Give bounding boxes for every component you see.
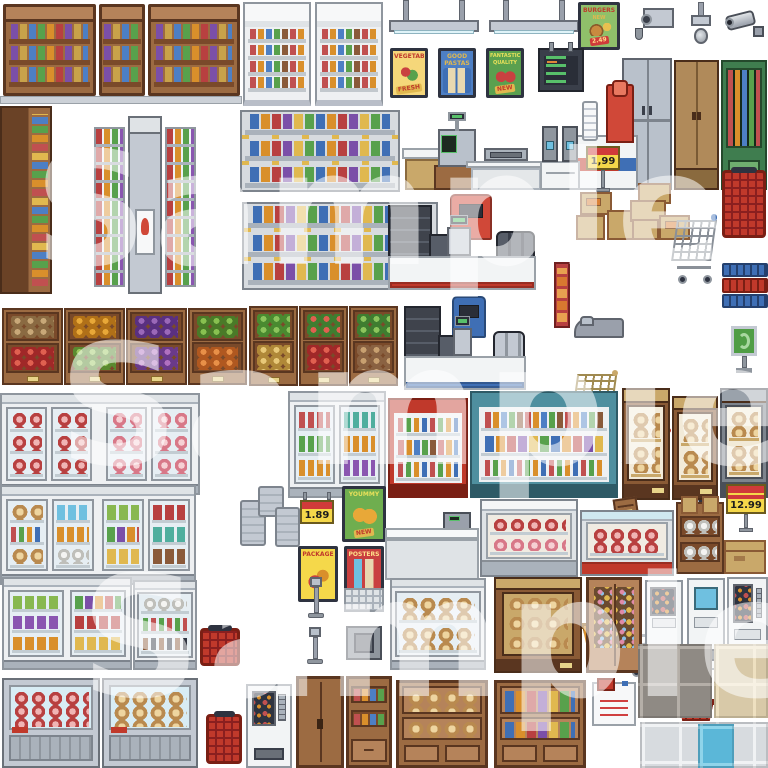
conveyor [388,205,432,258]
decor [697,112,701,120]
decor [490,537,569,555]
shelf-row [103,22,141,44]
sign-band [302,502,332,509]
cardboard-box-pile-a [576,192,638,240]
cooler-column-top [128,116,163,134]
price-tag [212,376,224,382]
poster-title: YOUMMY [346,491,382,498]
price-tag [27,376,39,382]
floor-tile-beige [714,644,768,718]
stacked-basket [722,294,768,308]
dairy-open-case-red [388,398,468,498]
plastic-crate-stack [240,486,300,548]
gondola-end-shelf [0,106,52,294]
shelf-header [6,7,93,22]
decor [546,141,554,149]
plastic-cart-red [722,170,766,238]
case-top [496,579,580,590]
sack-and-box-rack [676,502,724,574]
decor [506,635,570,652]
juice-art [349,559,378,588]
decor [141,596,188,614]
decor [10,434,43,455]
pasta-art [443,68,471,93]
case-top [2,487,194,496]
decor [508,598,568,610]
decor [635,28,643,40]
yummy-poster: YOUMMY NEW [342,486,386,542]
poster-badge: NEW [354,528,375,539]
decor [307,314,341,337]
decor [13,616,59,629]
decor [57,527,89,542]
case-base [624,484,668,498]
decor [453,218,465,222]
decor [74,635,123,654]
fridge-door [6,407,47,482]
cabinet-handle [320,719,323,729]
decor [452,115,462,118]
poster-subtitle: NEW [582,15,616,22]
decor [616,587,634,648]
box [681,496,699,514]
fridge-door [151,407,192,482]
decor [322,61,376,72]
shelf-row [248,76,306,92]
shelf-base-strip [0,96,242,104]
decor [730,446,758,471]
cooler-right-case [165,127,196,287]
decor [73,316,117,338]
decor [568,42,573,52]
cart-body [671,220,716,261]
sign-value: 1.89 [302,509,332,522]
decor [111,459,142,474]
decor [738,333,750,349]
decor [505,691,576,712]
snack-display-table [494,680,586,768]
bread-shelves [502,592,574,656]
sign-face: 1,99 [586,146,620,170]
sign-stand-pole-a [306,577,326,623]
case-top [624,390,668,403]
decor [492,519,566,532]
decor [113,692,187,727]
price-sign-1299: 12.99 [724,484,768,538]
decor [343,433,376,455]
decor [682,451,708,474]
decor [13,596,59,609]
shelf-row [248,60,306,76]
decor [344,436,375,452]
ceiling-dome-camera [688,2,714,44]
produce-bin-lettuce-potato [249,306,298,386]
cooler-left-case [94,127,125,287]
vegetable-art [395,61,423,84]
decor [492,539,566,552]
shelf-row [248,27,306,43]
case-base [135,660,195,668]
bin-top [353,310,394,340]
fridge-door [70,590,127,658]
produce-bin-greens-orange [188,308,247,385]
shelf-header [151,7,237,22]
decor [214,711,235,717]
lane-counter [388,256,536,290]
decor [681,448,709,478]
coin-panel [734,629,761,640]
decor [143,598,187,611]
decor [155,411,188,432]
green-arrow-signpost [729,326,759,379]
decor [153,549,185,564]
snack-vending-small [246,684,292,768]
case-top [392,580,484,588]
price-tag [268,377,280,383]
produce-bin-potato-tomato [2,308,63,385]
decor [407,691,478,712]
bin-top [192,312,243,341]
decor [56,525,90,545]
decor [357,314,391,337]
decor [104,24,139,38]
decor [731,167,758,173]
decor [104,67,139,81]
bin-top [130,312,182,341]
price-list-board [592,682,636,726]
decor [11,413,42,428]
decor [298,458,331,480]
freezer-label [12,727,28,733]
decor [250,167,391,182]
decor [508,617,568,629]
checkout-lane-red [388,205,536,290]
decor [10,503,44,523]
table-drawer [543,745,577,761]
decor [592,529,662,553]
decor [56,413,87,428]
fridge-door [51,407,92,482]
case-glass [586,522,669,560]
decor [106,503,140,523]
bread-display-table [396,680,488,768]
decor [401,598,475,620]
poster-badge: 2.49 [589,36,609,47]
rack-shelf [680,516,720,536]
wood-snack-shelf-b [148,4,240,96]
shelf-row [9,44,91,66]
decor [55,434,88,455]
decor [682,419,708,442]
decor [481,433,607,455]
bin-bottom [68,343,120,374]
decor [11,527,43,542]
box [702,496,720,514]
decor [10,411,43,432]
cup-stack [582,101,598,141]
case-top [582,512,672,521]
case-base [472,484,616,496]
shelf-row [103,65,141,87]
sign-pole [744,514,748,528]
decor [632,447,660,473]
countertop-oven [484,148,529,161]
sign-stand-pole-b [304,627,326,669]
decor [307,345,341,370]
sign-value: 1,99 [588,155,618,168]
beverage-cooler [288,391,386,498]
deli-meat-case [480,499,578,577]
decor [678,275,687,284]
shelf-row [154,44,235,66]
decor [11,46,88,60]
case-shelves [479,407,609,481]
table-shelf [500,717,579,740]
sign-foot [739,528,753,532]
decor [396,415,460,435]
display-window [650,587,676,616]
table-top [466,161,546,169]
case-base [482,560,576,575]
station-cabinet [540,161,580,190]
shelf-row [9,65,91,87]
shelf-row [245,139,395,162]
decor [357,345,391,370]
decor [327,492,331,500]
price-tag [151,376,163,382]
decor [559,0,565,22]
counter-body [385,539,479,580]
shelf-row [320,27,378,43]
produce-bin-eggplant [126,308,187,385]
cabinet-handle [317,719,320,729]
decor [322,29,376,40]
poster-title: VEGETABLE [394,53,424,60]
case-base [392,660,484,668]
decor [632,413,660,439]
air-vent-grille [344,588,384,612]
price-tag [368,377,380,383]
table-base [471,168,541,190]
coffee-machine-right [562,126,579,162]
decor [711,214,717,221]
case-glass [486,513,573,559]
lane-display [455,316,470,326]
stacked-basket [722,278,768,292]
decor [55,411,88,432]
decor [403,0,409,22]
decor [322,77,376,88]
stand-foot [307,659,323,664]
cooler-column [128,116,163,294]
decor [104,46,139,60]
decor [485,460,603,476]
price-tag [318,377,330,383]
shelf-header [102,7,142,22]
produce-bin-celery-potato [349,306,398,386]
frozen-snack-fridge [2,577,132,670]
decor [156,67,232,81]
poster-badge: FRESH [395,83,422,95]
checkout-lane-blue [404,306,526,390]
decor [401,628,475,650]
case-glass [627,405,665,481]
sign-face: 12.99 [726,484,766,514]
decor [56,503,90,523]
shelf-row [320,60,378,76]
decor [107,527,139,542]
decor [344,460,375,476]
wood-panel-fridge [674,60,719,190]
table-riser [500,686,579,714]
decor [208,625,232,631]
decor [10,525,44,545]
sign-value: 12.99 [728,499,764,512]
burger-poster: BURGERS NEW 2.49 [578,2,620,50]
decor [155,456,188,477]
bin-bottom [303,341,344,373]
stand-rod [313,637,318,659]
decor [106,525,140,545]
decor [647,60,649,188]
case-top [135,582,195,590]
bin-top [6,312,58,341]
crate [275,507,300,547]
decor [399,595,477,623]
decor [110,434,143,455]
plastic-cart-red-small [200,628,240,666]
cabinet-drawer [351,739,386,761]
lane-register [447,227,471,256]
decor [642,106,645,115]
decor [343,409,376,431]
counter-band [390,282,534,288]
wood-snack-shelf-a [3,4,96,96]
decor [594,587,612,648]
decor [75,616,121,629]
decor [73,347,117,370]
decor [141,218,149,235]
decor [505,722,576,738]
decor [11,505,43,520]
table-drawer [445,745,479,761]
white-grocery-shelf-b [315,2,383,106]
produce-bin-corn-apple [64,308,125,385]
decor [111,436,142,451]
floor-tile-dark [638,644,712,718]
decor [729,443,759,475]
decor [55,456,88,477]
table-shelf [402,717,481,740]
decor [703,275,712,284]
decor [143,638,187,651]
bakery-display-case-a [622,388,670,500]
decor [494,30,573,34]
case-base [390,484,466,496]
case-base [582,562,672,574]
stand-foot [308,613,324,618]
counter-band [406,382,524,388]
decor [152,525,186,545]
decor [153,527,185,542]
decor [75,596,121,609]
meat-display-fridge [0,393,200,495]
decor [152,547,186,567]
cooler-door [339,405,380,483]
table-drawer [404,745,438,761]
shelf-row [320,43,378,59]
sign-hooks [298,492,336,500]
poster-title: POSTERS [348,551,380,558]
poster-title: PACKAGE [302,551,334,558]
bin-bottom [130,343,182,374]
case-shelves [394,413,462,482]
decor [455,120,459,131]
cabinet-shelf [351,710,386,727]
fridge-door [106,407,147,482]
open-shelf-cabinet [346,676,392,768]
produce-bin-tomato-greens [299,306,348,386]
cabinet-shelf [351,686,386,703]
decor [612,370,618,376]
decor [135,347,179,370]
decor [250,141,391,156]
menu-board-screen [544,56,578,86]
shelf-row [245,165,395,188]
lane-display [450,215,468,225]
deli-counter-with-register [385,512,479,580]
decor [141,636,188,654]
decor [56,547,90,567]
case-top [722,390,766,403]
decor [299,436,330,452]
fridge-door [6,499,48,572]
sign-pole [601,170,605,188]
wood-wardrobe-cabinet [296,676,344,768]
decor [303,492,307,500]
decor [681,416,709,446]
decor [11,316,55,338]
ceiling-light-b [489,0,579,36]
red-end-shelf [554,262,570,328]
shopping-cart-blue-handle [672,214,718,284]
snack-window [733,584,754,623]
bottle-drinks-fridge [133,580,197,670]
decor [10,456,43,477]
case-base [496,659,580,671]
poster-title: BURGERS [582,7,616,14]
vending-slot [254,748,284,759]
vending-window [726,68,761,147]
case-base [4,660,130,668]
decor [110,456,143,477]
cooler-door [294,405,335,483]
decor [590,526,665,556]
freezer-glass [9,685,94,730]
vending-screen [694,587,719,610]
decor [396,438,460,458]
decor [197,316,239,338]
decor [677,266,711,269]
decor [299,460,330,476]
decor [481,409,607,431]
decor [11,24,88,38]
decor [490,517,569,535]
pasta-poster: GOOD PASTAS [438,48,476,98]
keypad [278,694,286,721]
lane-register [453,328,473,357]
sign-band [728,486,764,493]
